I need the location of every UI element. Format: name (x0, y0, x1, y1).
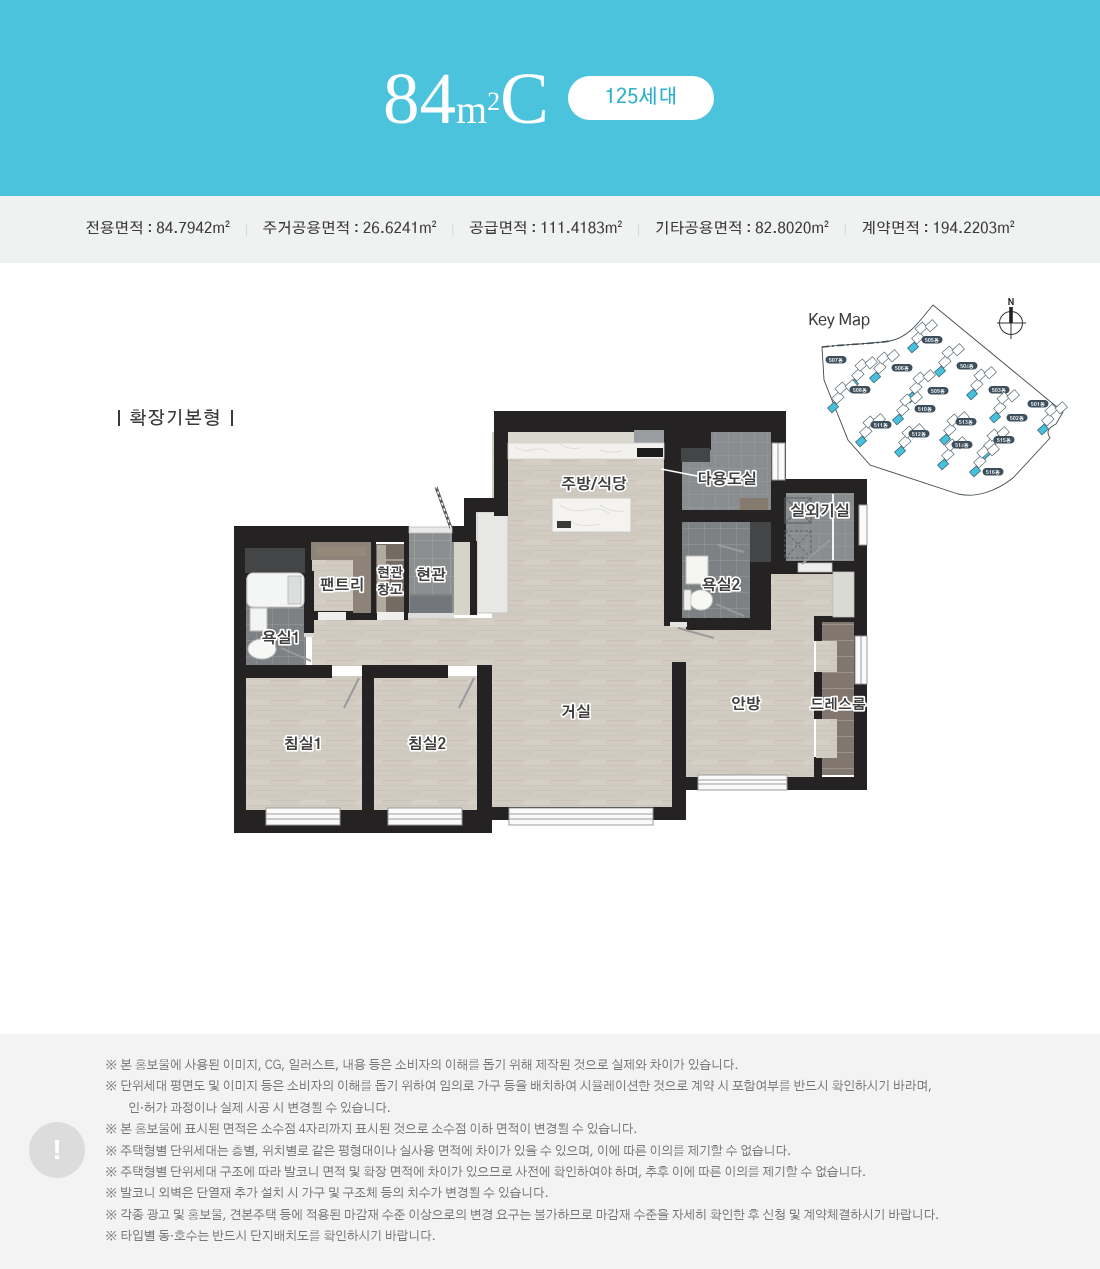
svg-text:515동: 515동 (997, 437, 1011, 444)
svg-text:다용도실: 다용도실 (697, 471, 757, 488)
svg-text:516동: 516동 (986, 469, 1000, 476)
svg-text:주방/식당: 주방/식당 (561, 475, 627, 493)
svg-text:드레스룸: 드레스룸 (810, 697, 866, 712)
svg-text:실외기실: 실외기실 (790, 503, 850, 520)
svg-text:512동: 512동 (912, 431, 926, 438)
svg-text:거실: 거실 (561, 704, 591, 721)
svg-text:501동: 501동 (1031, 401, 1045, 408)
svg-text:팬트리: 팬트리 (320, 577, 365, 594)
svg-text:509동: 509동 (931, 388, 945, 395)
svg-text:현관: 현관 (377, 565, 403, 580)
svg-text:505동: 505동 (925, 337, 939, 344)
svg-text:안방: 안방 (731, 696, 761, 713)
svg-text:507동: 507동 (829, 357, 843, 364)
svg-text:504동: 504동 (960, 363, 974, 370)
svg-text:침실2: 침실2 (408, 736, 447, 753)
svg-text:N: N (1008, 298, 1015, 307)
svg-text:욕실2: 욕실2 (702, 577, 741, 594)
svg-text:창고: 창고 (377, 583, 403, 597)
svg-text:514동: 514동 (955, 442, 969, 449)
svg-text:510동: 510동 (918, 406, 932, 413)
svg-text:502동: 502동 (1010, 415, 1024, 422)
svg-text:513동: 513동 (959, 419, 973, 426)
svg-text:508동: 508동 (853, 387, 867, 394)
svg-text:현관: 현관 (416, 567, 446, 584)
svg-text:506동: 506동 (895, 365, 909, 372)
svg-text:침실1: 침실1 (284, 736, 323, 753)
svg-text:욕실1: 욕실1 (262, 630, 301, 647)
svg-text:Key Map: Key Map (808, 313, 870, 329)
